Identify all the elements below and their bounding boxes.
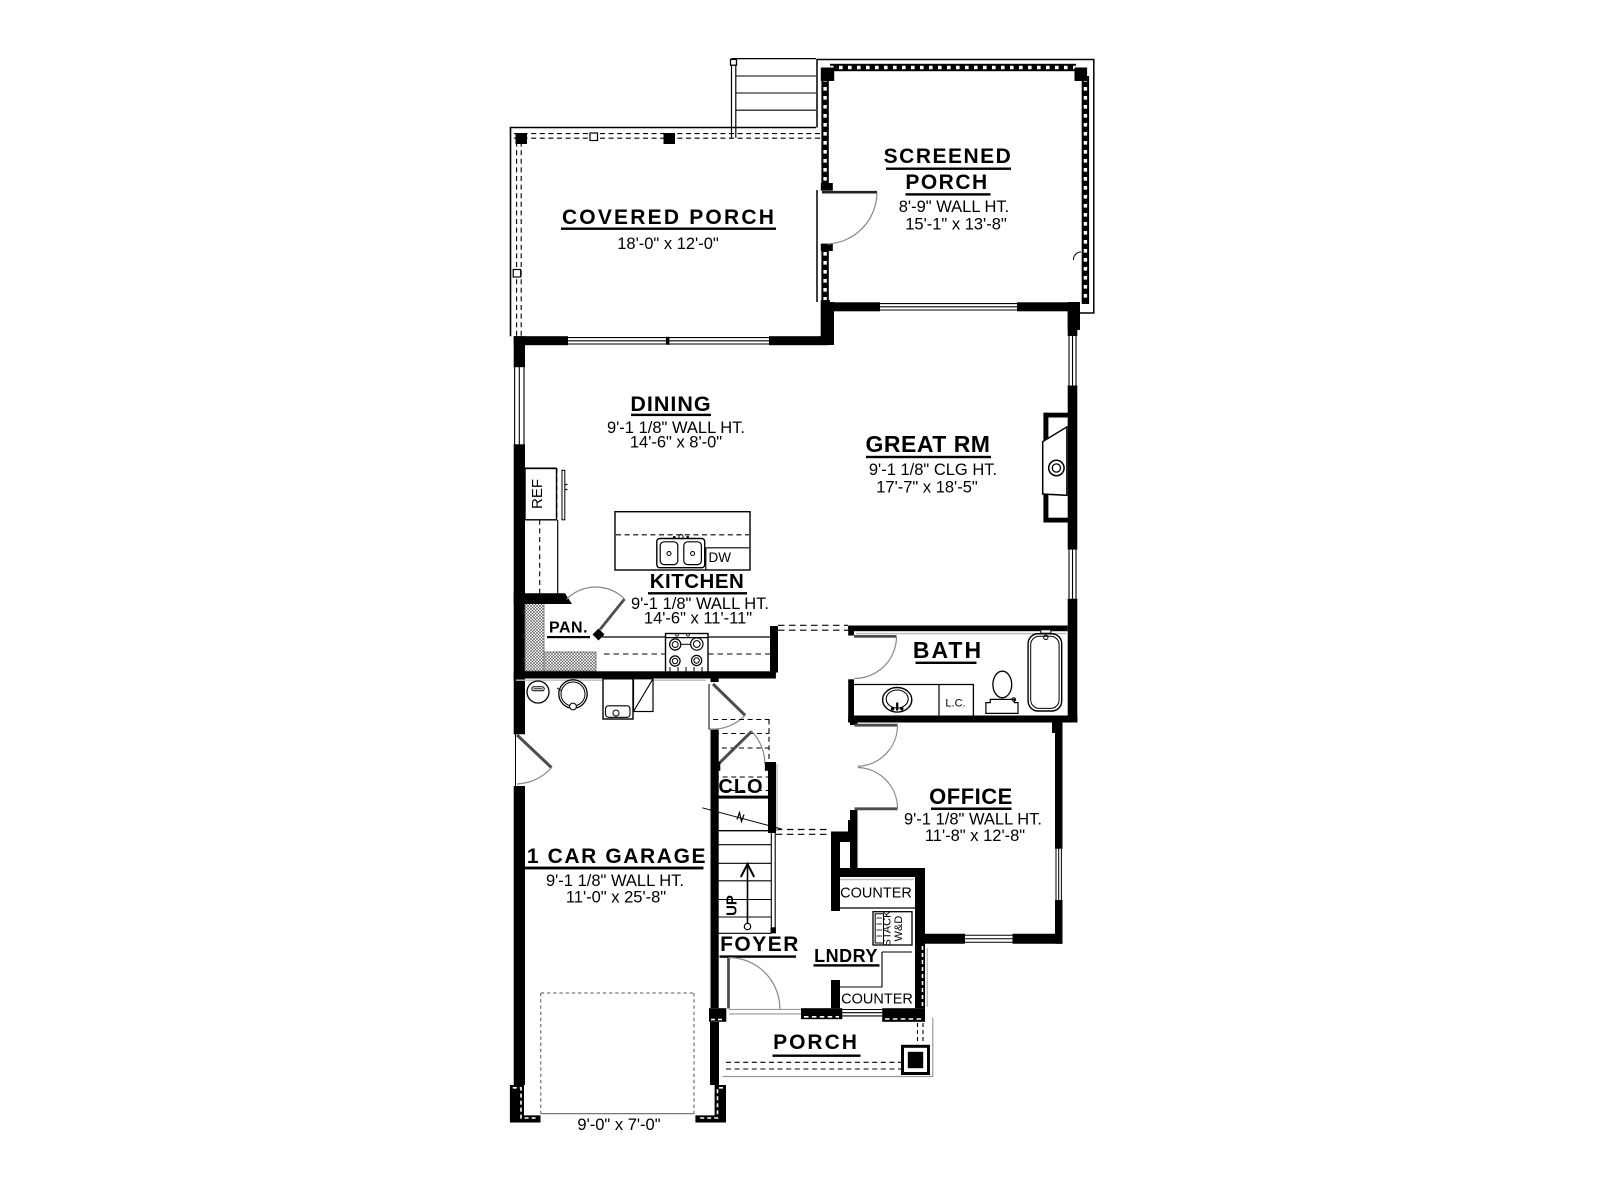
svg-text:W&D: W&D [893, 916, 905, 942]
svg-text:11'-0" x 25'-8": 11'-0" x 25'-8" [566, 889, 666, 907]
svg-text:L.C.: L.C. [945, 698, 965, 710]
svg-text:COUNTER: COUNTER [840, 886, 912, 902]
svg-text:GREAT RM: GREAT RM [866, 431, 991, 457]
svg-text:COVERED PORCH: COVERED PORCH [562, 206, 776, 229]
svg-text:PORCH: PORCH [773, 1031, 859, 1054]
svg-text:DW: DW [709, 550, 732, 565]
svg-text:COUNTER: COUNTER [841, 992, 913, 1008]
svg-text:14'-6" x 8'-0": 14'-6" x 8'-0" [630, 434, 722, 452]
svg-text:PAN.: PAN. [549, 620, 588, 637]
svg-text:PORCH: PORCH [905, 171, 988, 194]
svg-text:17'-7" x 18'-5": 17'-7" x 18'-5" [876, 479, 978, 497]
svg-text:14'-6" x 11'-11": 14'-6" x 11'-11" [644, 610, 752, 628]
svg-text:OFFICE: OFFICE [929, 784, 1013, 809]
svg-text:STACK: STACK [882, 910, 894, 947]
svg-text:BATH: BATH [913, 637, 983, 663]
svg-text:SCREENED: SCREENED [884, 145, 1013, 168]
svg-text:CLO: CLO [718, 776, 763, 798]
svg-text:9'-1 1/8" CLG HT.: 9'-1 1/8" CLG HT. [869, 461, 997, 479]
svg-text:LNDRY: LNDRY [814, 946, 878, 966]
svg-text:18'-0" x 12'-0": 18'-0" x 12'-0" [617, 235, 719, 253]
svg-text:11'-8" x 12'-8": 11'-8" x 12'-8" [925, 827, 1025, 845]
svg-text:FOYER: FOYER [720, 933, 800, 956]
svg-text:9'-1 1/8" WALL HT.: 9'-1 1/8" WALL HT. [904, 811, 1042, 829]
svg-text:9'-1 1/8" WALL HT.: 9'-1 1/8" WALL HT. [546, 872, 684, 890]
svg-text:9'-0" x 7'-0": 9'-0" x 7'-0" [577, 1116, 660, 1134]
svg-text:KITCHEN: KITCHEN [650, 570, 745, 593]
svg-text:DINING: DINING [630, 392, 711, 416]
svg-text:REF: REF [529, 479, 546, 509]
svg-text:8'-9" WALL HT.: 8'-9" WALL HT. [899, 198, 1009, 216]
svg-text:1 CAR GARAGE: 1 CAR GARAGE [527, 845, 707, 868]
svg-text:UP: UP [724, 895, 741, 916]
svg-text:15'-1" x 13'-8": 15'-1" x 13'-8" [905, 216, 1007, 234]
